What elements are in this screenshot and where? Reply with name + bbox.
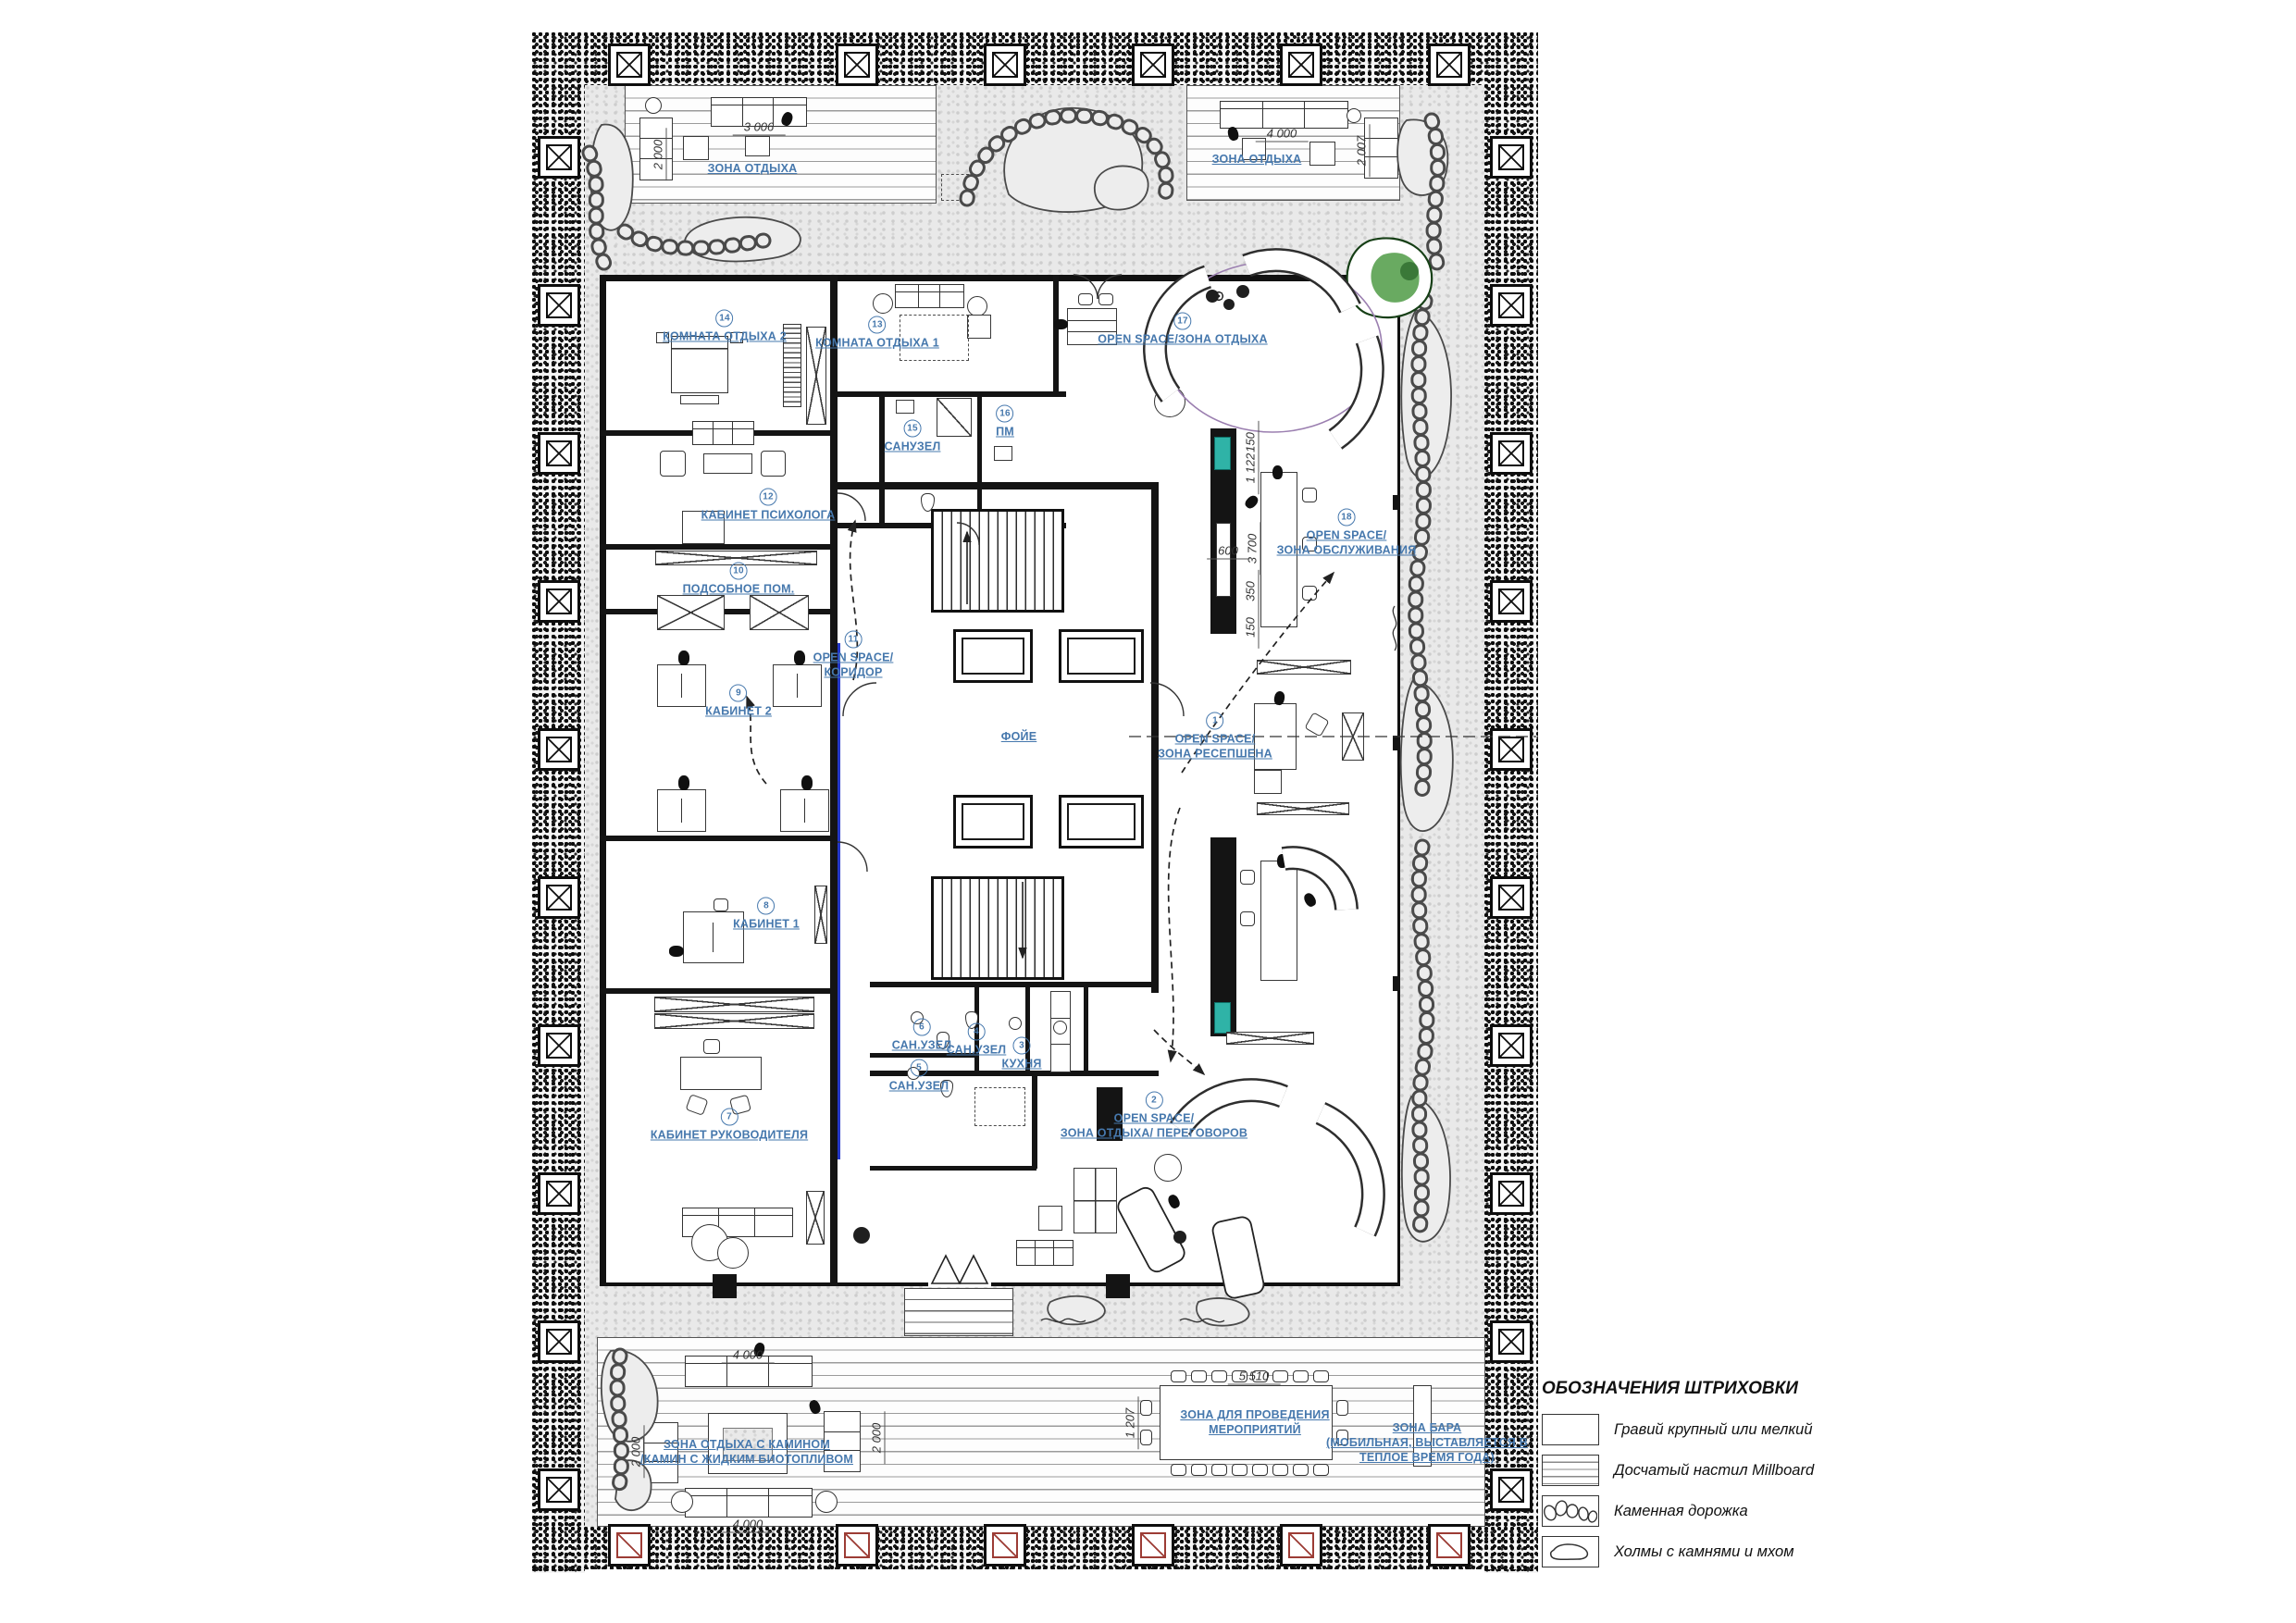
room-label-line: САН.УЗЕЛ: [892, 1038, 952, 1053]
room-label-line: КОМНАТА ОТДЫХА 2: [663, 329, 787, 344]
deck-swatch: [1542, 1455, 1599, 1486]
room-number: 2: [1146, 1092, 1163, 1109]
room-number: 13: [868, 316, 886, 334]
room-label-psychologist: 12КАБИНЕТ ПСИХОЛОГА: [701, 489, 836, 523]
dimension-label: 4 000: [1256, 127, 1309, 142]
dimension-label: 3 006: [733, 120, 786, 136]
dimension-label: 2 000: [652, 129, 667, 181]
room-label-line: ЗОНА ДЛЯ ПРОВЕДЕНИЯ: [1180, 1407, 1329, 1422]
room-number: 4: [968, 1023, 986, 1041]
room-number: 15: [903, 420, 921, 438]
room-label-reception: 1OPEN SPACE/ЗОНА РЕСЕПШЕНА: [1158, 712, 1272, 762]
room-label-corridor: 11OPEN SPACE/КОРИДОР: [813, 631, 894, 680]
gravel-swatch: [1542, 1414, 1599, 1445]
hill-icon: [1543, 1537, 1597, 1566]
legend-row-deck: Досчатый настил Millboard: [1542, 1455, 1869, 1486]
plan-labels: 1OPEN SPACE/ЗОНА РЕСЕПШЕНА2OPEN SPACE/ЗО…: [532, 32, 1538, 1573]
legend-label: Каменная дорожка: [1614, 1503, 1748, 1520]
room-label-line: ЗОНА БАРА: [1326, 1420, 1528, 1435]
room-number: 16: [997, 405, 1014, 423]
room-label-line: OPEN SPACE/: [813, 650, 894, 665]
dimension-label: 1 122: [1244, 442, 1260, 495]
room-label-office-1: 8КАБИНЕТ 1: [733, 898, 800, 932]
room-label-line: ЗОНА ОТДЫХА/ ПЕРЕГОВОРОВ: [1061, 1126, 1247, 1141]
room-number: 7: [720, 1109, 738, 1126]
room-number: 17: [1173, 313, 1191, 330]
site-plan: 1OPEN SPACE/ЗОНА РЕСЕПШЕНА2OPEN SPACE/ЗО…: [532, 32, 1538, 1573]
room-label-kitchen: 3КУХНЯ: [1001, 1037, 1041, 1072]
room-label-line: ЗОНА ОТДЫХА: [708, 161, 798, 176]
room-number: 11: [845, 631, 863, 649]
room-label-line: ЗОНА ОТДЫХА: [1212, 152, 1302, 167]
room-label-foyer: ФОЙЕ: [1001, 729, 1037, 744]
legend-title: ОБОЗНАЧЕНИЯ ШТРИХОВКИ: [1542, 1379, 1869, 1399]
room-label-office-2: 9КАБИНЕТ 2: [705, 685, 772, 719]
room-label-rest-room-1: 13КОМНАТА ОТДЫХА 1: [815, 316, 939, 351]
room-label-line: /КАМИН С ЖИДКИМ БИОТОПЛИВОМ: [640, 1452, 853, 1467]
dimension-label: 4 000: [722, 1348, 775, 1364]
room-number: 14: [715, 310, 733, 328]
legend-row-stone-path: Каменная дорожка: [1542, 1495, 1869, 1527]
room-label-line: (МОБИЛЬНАЯ, ВЫСТАВЛЯЕТСЯ В: [1326, 1435, 1528, 1450]
dimension-label: 2 007: [1355, 125, 1371, 178]
room-label-utility: 10ПОДСОБНОЕ ПОМ.: [683, 563, 795, 597]
legend-label: Досчатый настил Millboard: [1614, 1462, 1814, 1480]
legend-row-gravel: Гравий крупный или мелкий: [1542, 1414, 1869, 1445]
legend: ОБОЗНАЧЕНИЯ ШТРИХОВКИ Гравий крупный или…: [1536, 1379, 1869, 1577]
dimension-label: 4 000: [722, 1518, 775, 1533]
room-label-line: САН.УЗЕЛ: [889, 1079, 949, 1094]
room-label-line: OPEN SPACE/: [1061, 1111, 1247, 1126]
room-label-line: КУХНЯ: [1001, 1057, 1041, 1072]
room-label-wc-6: 6САН.УЗЕЛ: [892, 1019, 952, 1053]
room-number: 9: [729, 685, 747, 702]
room-label-line: ЗОНА ОТДЫХА С КАМИНОМ: [640, 1437, 853, 1452]
room-label-rest-deck-right: ЗОНА ОТДЫХА: [1212, 152, 1302, 167]
room-label-wc-5: 5САН.УЗЕЛ: [889, 1059, 949, 1094]
room-number: 18: [1338, 509, 1356, 527]
room-label-line: OPEN SPACE/ЗОНА ОТДЫХА: [1098, 332, 1267, 347]
room-label-line: OPEN SPACE/: [1277, 528, 1417, 543]
hills-swatch: [1542, 1536, 1599, 1567]
room-number: 5: [911, 1059, 928, 1077]
room-label-events-zone: ЗОНА ДЛЯ ПРОВЕДЕНИЯМЕРОПРИЯТИЙ: [1180, 1407, 1329, 1437]
room-number: 3: [1012, 1037, 1030, 1055]
dimension-label: 600: [1207, 544, 1249, 560]
room-label-bathroom-15: 15САНУЗЕЛ: [885, 420, 941, 454]
room-label-lounge-meeting: 2OPEN SPACE/ЗОНА ОТДЫХА/ ПЕРЕГОВОРОВ: [1061, 1092, 1247, 1141]
dimension-label: 2 000: [870, 1412, 886, 1465]
dimension-label: 150: [1244, 606, 1260, 649]
room-label-pm-16: 16ПМ: [996, 405, 1014, 440]
room-label-line: КАБИНЕТ 1: [733, 917, 800, 932]
room-number: 1: [1206, 712, 1223, 730]
room-label-line: КОМНАТА ОТДЫХА 1: [815, 336, 939, 351]
room-label-line: ФОЙЕ: [1001, 729, 1037, 744]
room-label-line: ЗОНА ОБСЛУЖИВАНИЯ: [1277, 543, 1417, 558]
room-label-lounge-open: 17OPEN SPACE/ЗОНА ОТДЫХА: [1098, 313, 1267, 347]
dimension-label: 1 207: [1123, 1397, 1139, 1450]
floor-plan-sheet: 1OPEN SPACE/ЗОНА РЕСЕПШЕНА2OPEN SPACE/ЗО…: [0, 0, 2296, 1623]
legend-label: Гравий крупный или мелкий: [1614, 1421, 1813, 1439]
room-label-line: ПМ: [996, 425, 1014, 440]
stone-path-swatch: [1542, 1495, 1599, 1527]
room-label-line: КАБИНЕТ ПСИХОЛОГА: [701, 508, 836, 523]
room-number: 6: [913, 1019, 931, 1036]
room-number: 10: [729, 563, 747, 580]
room-label-bar-zone: ЗОНА БАРА(МОБИЛЬНАЯ, ВЫСТАВЛЯЕТСЯ ВТЕПЛО…: [1326, 1420, 1528, 1465]
room-number: 8: [757, 898, 775, 915]
dimension-label: 5 510: [1228, 1369, 1281, 1385]
room-label-line: ЗОНА РЕСЕПШЕНА: [1158, 747, 1272, 762]
room-label-service-zone: 18OPEN SPACE/ЗОНА ОБСЛУЖИВАНИЯ: [1277, 509, 1417, 558]
room-label-line: САНУЗЕЛ: [885, 440, 941, 454]
room-label-wc-4: 4САН.УЗЕЛ: [947, 1023, 1007, 1058]
room-label-director-office: 7КАБИНЕТ РУКОВОДИТЕЛЯ: [651, 1109, 808, 1143]
room-label-line: КАБИНЕТ РУКОВОДИТЕЛЯ: [651, 1128, 808, 1143]
room-label-line: САН.УЗЕЛ: [947, 1043, 1007, 1058]
legend-row-hills: Холмы с камнями и мхом: [1542, 1536, 1869, 1567]
room-label-line: МЕРОПРИЯТИЙ: [1180, 1422, 1329, 1437]
room-label-fireplace-zone: ЗОНА ОТДЫХА С КАМИНОМ/КАМИН С ЖИДКИМ БИО…: [640, 1437, 853, 1467]
legend-label: Холмы с камнями и мхом: [1614, 1543, 1794, 1561]
stones-icon: [1543, 1496, 1597, 1525]
room-label-rest-room-2: 14КОМНАТА ОТДЫХА 2: [663, 310, 787, 344]
room-label-line: ПОДСОБНОЕ ПОМ.: [683, 582, 795, 597]
room-label-line: КАБИНЕТ 2: [705, 704, 772, 719]
room-label-line: OPEN SPACE/: [1158, 732, 1272, 747]
room-label-rest-deck-left: ЗОНА ОТДЫХА: [708, 161, 798, 176]
room-number: 12: [760, 489, 777, 506]
room-label-line: КОРИДОР: [813, 665, 894, 680]
room-label-line: ТЕПЛОЕ ВРЕМЯ ГОДА): [1326, 1450, 1528, 1465]
